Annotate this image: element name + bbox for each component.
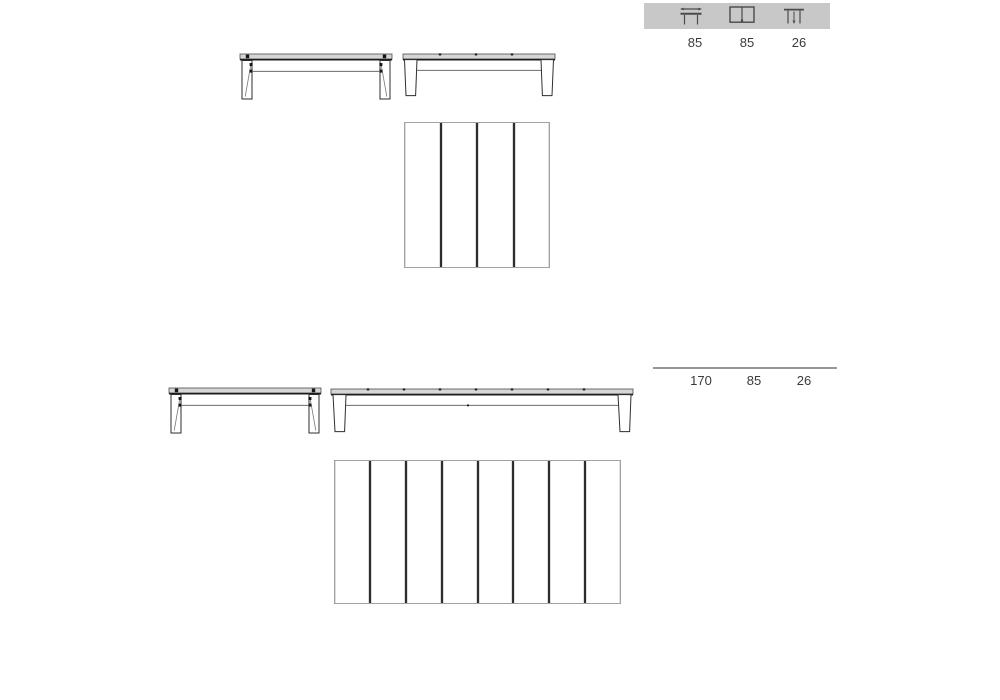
closed-table-top-view — [404, 122, 550, 268]
extended-depth-value: 85 — [747, 374, 761, 388]
right-leg — [541, 60, 554, 96]
closed-width-value: 85 — [688, 36, 702, 50]
left-leg — [405, 60, 418, 96]
extended-table-top-view — [334, 460, 621, 604]
tabletop — [331, 389, 633, 394]
plank — [476, 123, 513, 267]
furniture-dimension-diagram: 85 85 26 170 85 26 — [0, 0, 1000, 700]
tabletop — [169, 388, 321, 393]
extended-top-leaves-icon — [729, 6, 755, 24]
closed-table-width-icon — [679, 6, 703, 26]
extended-measure-line — [653, 367, 837, 369]
plank — [440, 123, 477, 267]
extended-height-value: 26 — [797, 374, 811, 388]
right-leg — [618, 395, 631, 432]
plank — [405, 123, 440, 267]
closed-height-value: 26 — [792, 36, 806, 50]
left-leg — [333, 395, 346, 432]
closed-depth-value: 85 — [740, 36, 754, 50]
plank — [584, 461, 620, 603]
extended-length-value: 170 — [690, 374, 712, 388]
plank — [441, 461, 477, 603]
plank — [513, 123, 550, 267]
extended-table-front-view — [330, 388, 634, 434]
closed-table-end-view — [239, 53, 393, 100]
plank — [369, 461, 405, 603]
table-height-icon — [783, 6, 805, 26]
plank — [335, 461, 369, 603]
extended-table-end-view — [168, 387, 322, 434]
plank — [512, 461, 548, 603]
tabletop — [403, 54, 555, 59]
tabletop — [240, 54, 392, 59]
plank — [477, 461, 513, 603]
legend-bar — [644, 3, 830, 29]
plank — [405, 461, 441, 603]
plank — [548, 461, 584, 603]
closed-table-front-view — [402, 53, 556, 98]
